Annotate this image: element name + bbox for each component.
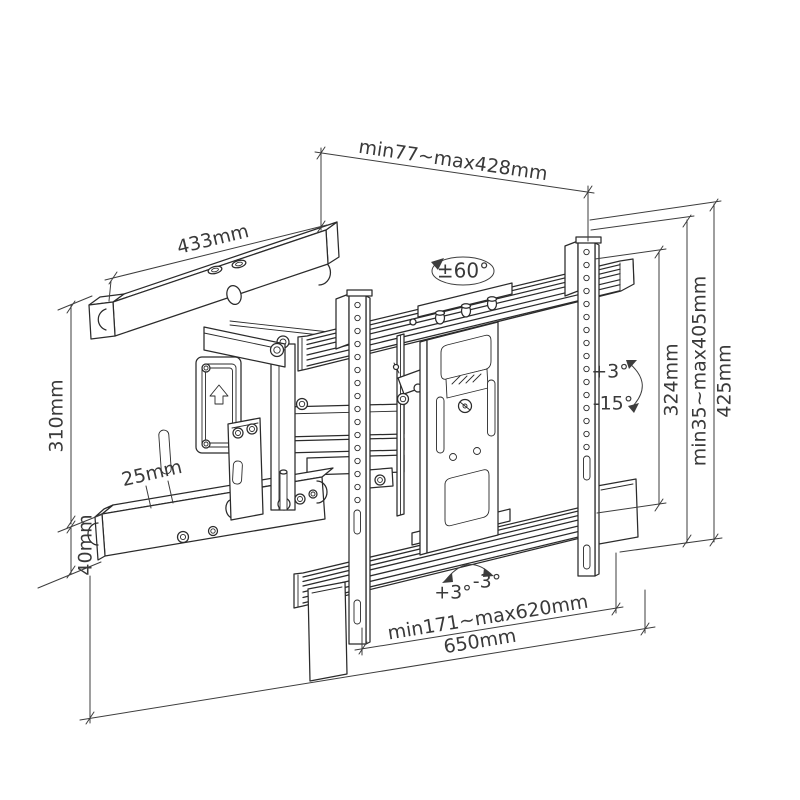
dimension-swivel: ±60° — [431, 257, 494, 285]
technical-drawing-page: min77~max428mm 433mm ±60° 310mm 40mm 25m… — [0, 0, 800, 800]
tilt-up-label: +3° — [591, 361, 629, 383]
overall-height-label: 425mm — [714, 344, 736, 417]
height-range-label: min35~max405mm — [689, 276, 711, 467]
inner-height-label: 324mm — [661, 343, 683, 416]
dimension-plate-height: 310mm 40mm — [38, 296, 103, 588]
lock-pin — [280, 472, 287, 510]
dimension-depth-range: min77~max428mm — [315, 136, 594, 241]
level-left-label: +3° — [434, 582, 472, 604]
swivel-label: ±60° — [437, 259, 489, 283]
wall-mount-diagram: min77~max428mm 433mm ±60° 310mm 40mm 25m… — [0, 0, 800, 800]
safety-tab — [232, 461, 242, 484]
tilt-down-label: -15° — [593, 393, 634, 415]
depth-range-label: min77~max428mm — [357, 136, 549, 185]
lower-arm-height-label: 40mm — [75, 514, 97, 575]
plate-height-label: 310mm — [46, 379, 68, 452]
level-right-label: -3° — [473, 571, 501, 593]
arm-detail-label: 25mm — [120, 456, 185, 491]
center-plate — [420, 322, 498, 555]
